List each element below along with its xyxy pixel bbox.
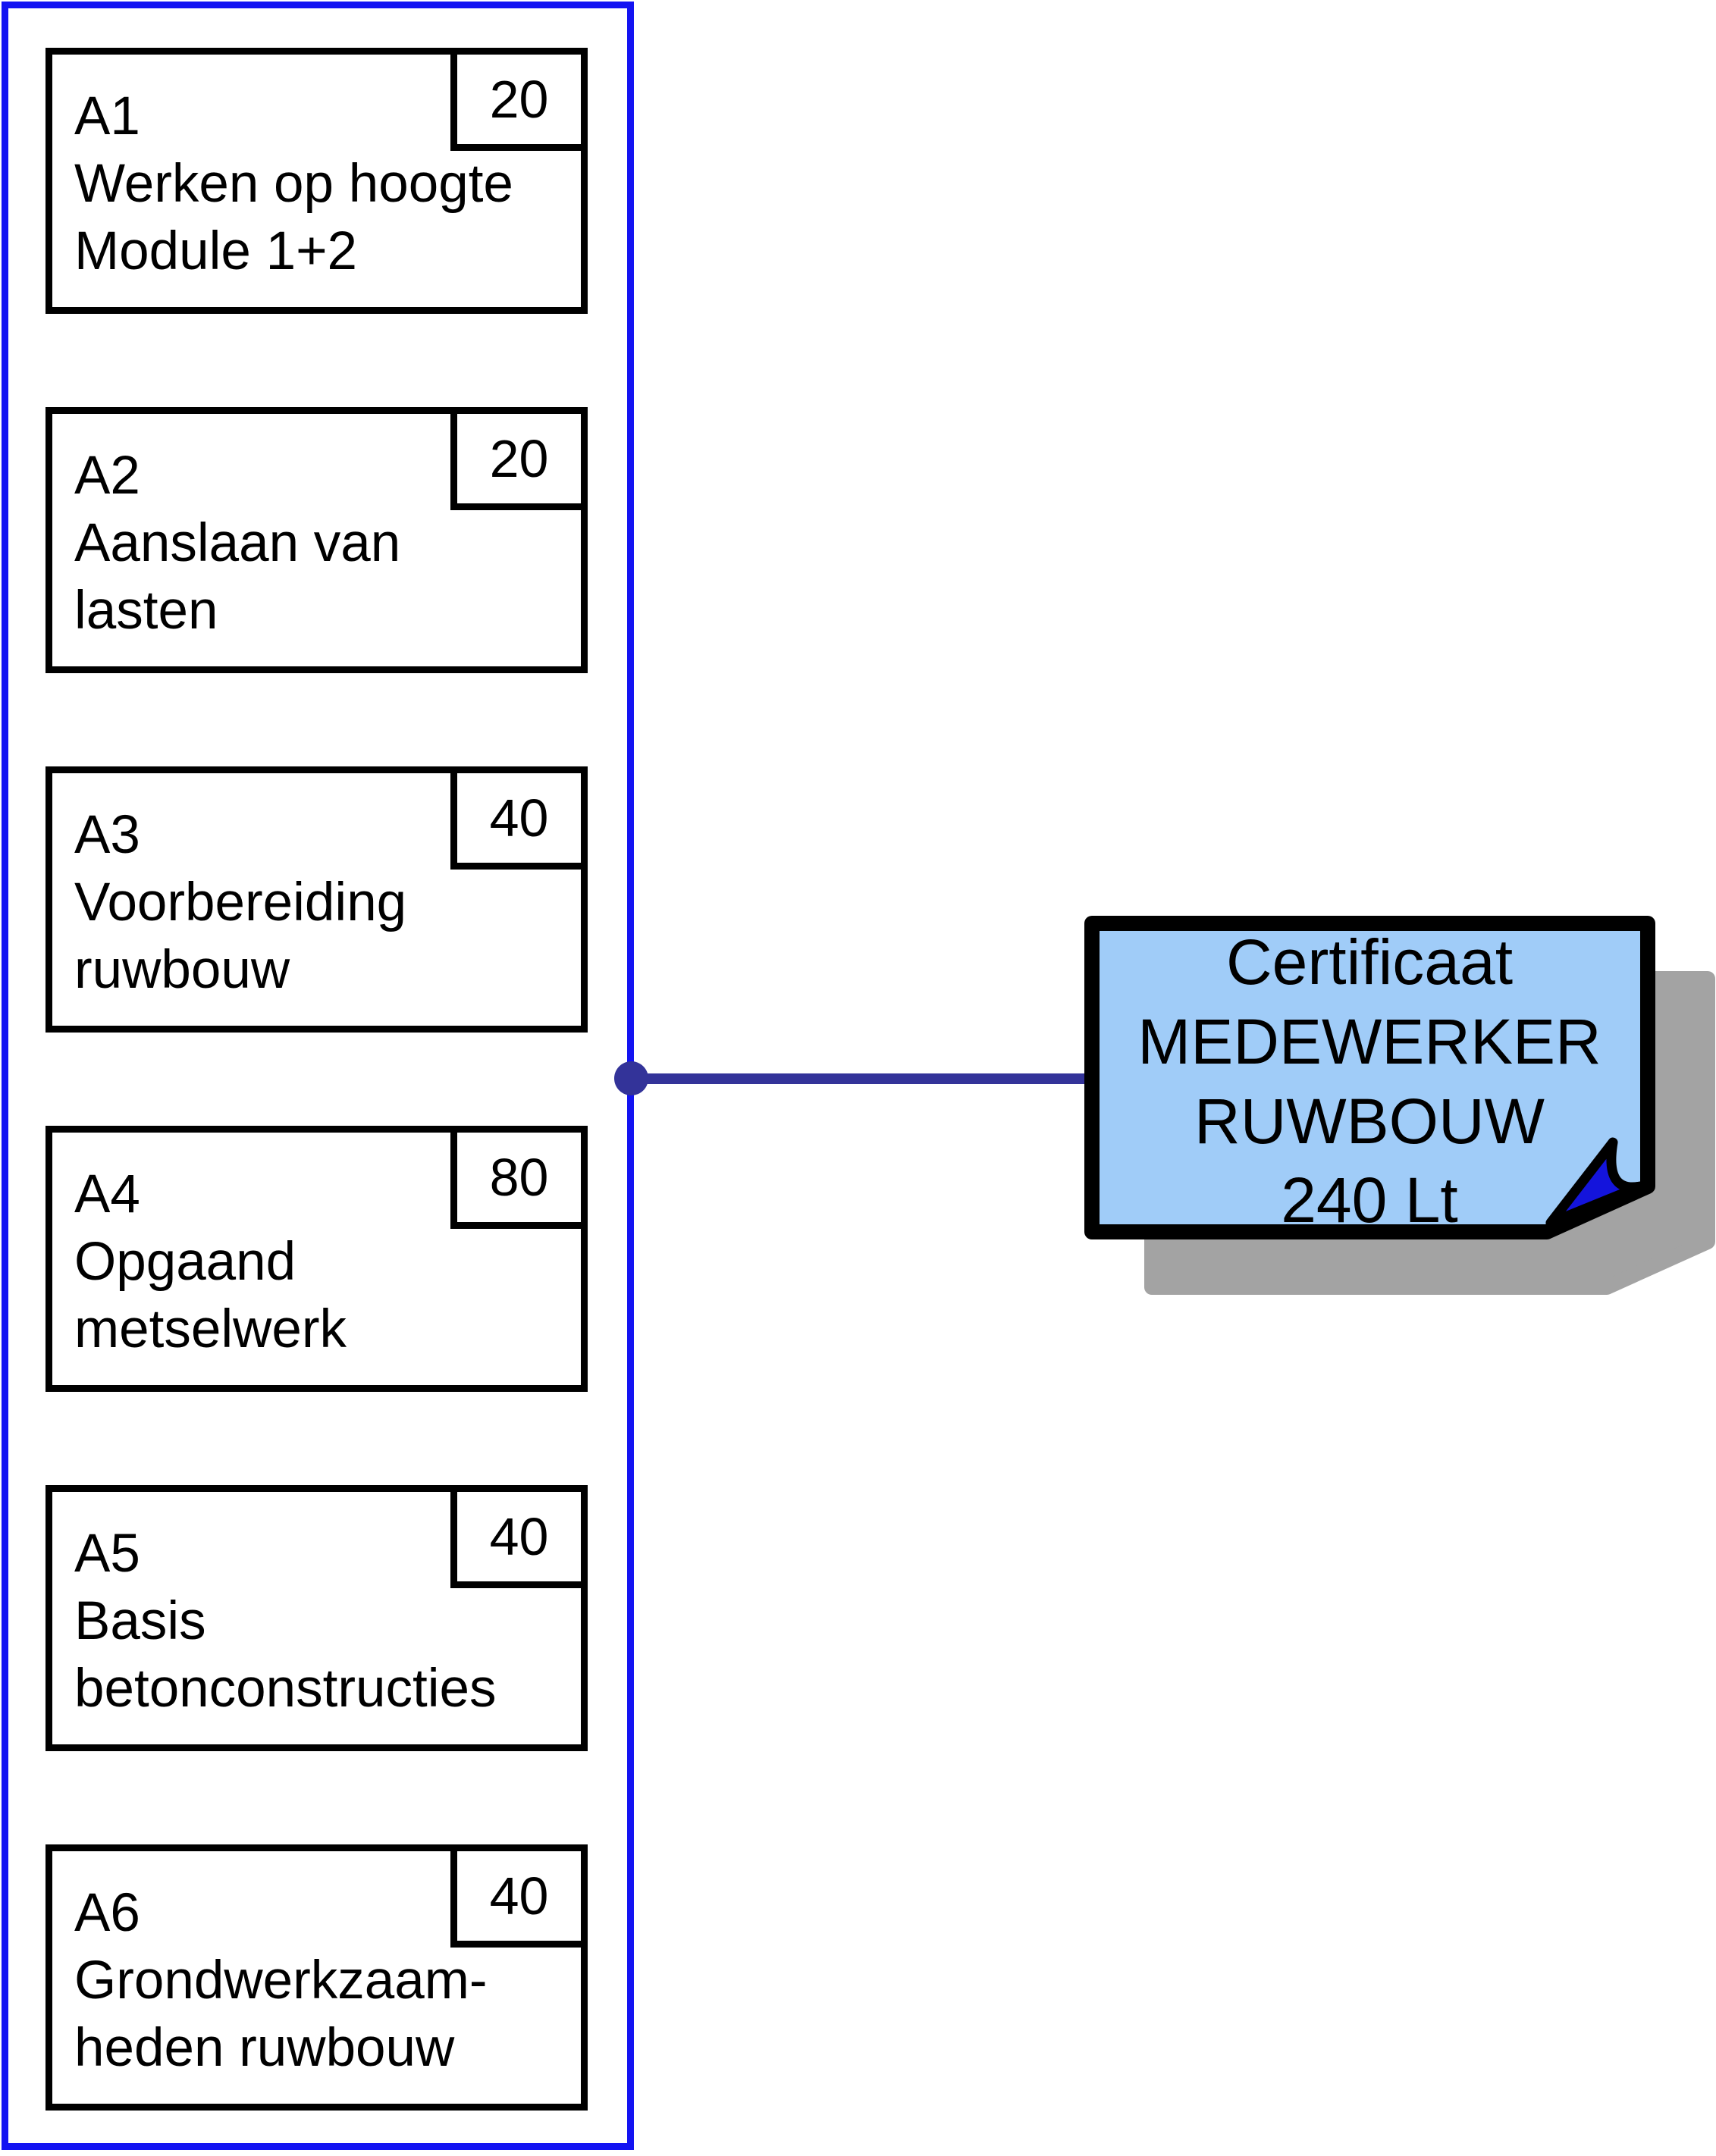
- module-title: Opgaand metselwerk: [74, 1228, 572, 1363]
- connector-junction-dot: [614, 1061, 648, 1095]
- certificate-text-line: 240 Lt: [1281, 1164, 1458, 1236]
- connector-line: [632, 1073, 1092, 1084]
- module-hours-badge: 20: [450, 407, 588, 510]
- module-hours-value: 80: [490, 1147, 549, 1208]
- module-hours-value: 40: [490, 1506, 549, 1567]
- module-hours-value: 20: [490, 69, 549, 130]
- module-title: Basis betonconstructies: [74, 1587, 572, 1722]
- module-title: Grondwerkzaam- heden ruwbouw: [74, 1947, 572, 2082]
- module-hours-value: 40: [490, 788, 549, 848]
- module-title: Voorbereiding ruwbouw: [74, 869, 572, 1004]
- module-hours-badge: 80: [450, 1126, 588, 1229]
- module-hours-badge: 40: [450, 1844, 588, 1948]
- certificate-text-line: Certificaat: [1226, 926, 1513, 998]
- module-box-a2: A2 Aanslaan van lasten 20: [45, 407, 588, 673]
- module-hours-value: 20: [490, 428, 549, 489]
- module-hours-value: 40: [490, 1866, 549, 1926]
- diagram-canvas: A1 Werken op hoogte Module 1+2 20 A2 Aan…: [0, 0, 1716, 2156]
- module-box-a4: A4 Opgaand metselwerk 80: [45, 1126, 588, 1392]
- module-hours-badge: 40: [450, 1485, 588, 1588]
- module-box-a3: A3 Voorbereiding ruwbouw 40: [45, 766, 588, 1033]
- module-group-frame: [2, 2, 634, 2150]
- certificate-text-line: RUWBOUW: [1194, 1086, 1545, 1157]
- certificate-text-line: MEDEWERKER: [1137, 1006, 1601, 1077]
- module-hours-badge: 20: [450, 48, 588, 151]
- certificate-note: Certificaat MEDEWERKER RUWBOUW 240 Lt: [1062, 895, 1716, 1319]
- module-title: Werken op hoogte Module 1+2: [74, 150, 572, 285]
- module-box-a6: A6 Grondwerkzaam- heden ruwbouw 40: [45, 1844, 588, 2111]
- module-title: Aanslaan van lasten: [74, 509, 572, 644]
- module-box-a1: A1 Werken op hoogte Module 1+2 20: [45, 48, 588, 314]
- module-hours-badge: 40: [450, 766, 588, 870]
- module-box-a5: A5 Basis betonconstructies 40: [45, 1485, 588, 1751]
